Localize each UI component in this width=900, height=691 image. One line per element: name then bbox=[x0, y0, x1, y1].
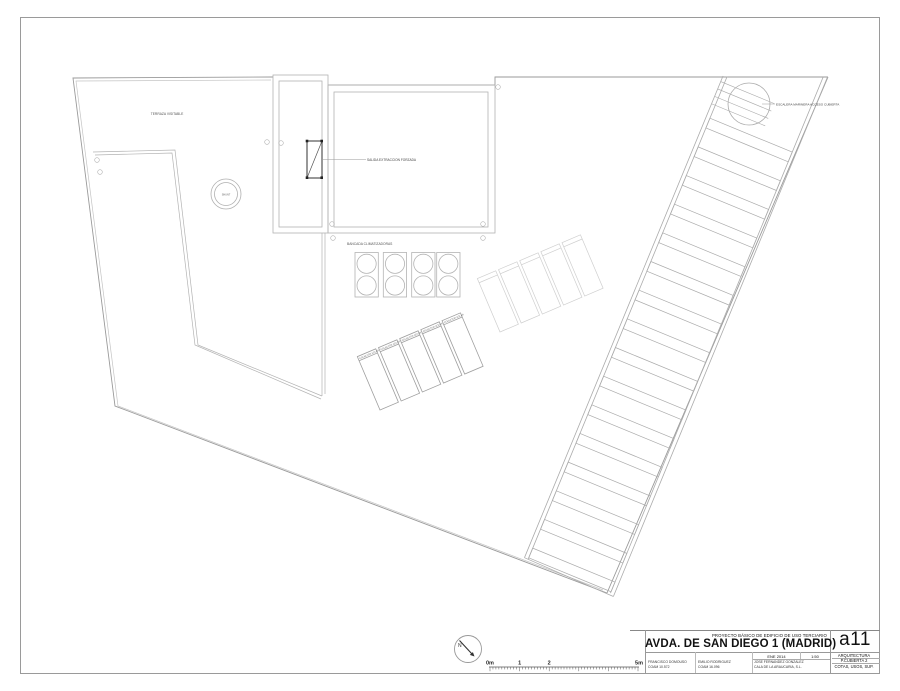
exterior-stair-band bbox=[524, 40, 828, 597]
scale-bar-ticks bbox=[490, 667, 638, 671]
ac-units-label: BANCADA CLIMATIZADORAS bbox=[347, 242, 393, 246]
site-boundary bbox=[73, 77, 828, 593]
solar-collectors: COLECTOR SOLARCOLECTOR SOLARCOLECTOR SOL… bbox=[357, 312, 485, 410]
scale-label-0: 0m bbox=[486, 661, 494, 667]
stair-landings bbox=[529, 118, 792, 592]
stair-treads bbox=[712, 82, 775, 126]
roof-access-stair-label: ESCALERA MARINERA ACCESO CUBIERTA bbox=[776, 103, 840, 107]
terrace-label: TERRAZA VISITABLE bbox=[151, 112, 184, 116]
signatory-credential: COAM 10.572 bbox=[648, 665, 694, 670]
divider bbox=[695, 652, 696, 673]
terrace-inner-edge bbox=[93, 150, 325, 399]
ac-units bbox=[355, 253, 460, 298]
site-boundary-inner bbox=[76, 80, 603, 590]
sheet-contents: COTAS, USOS, SUP. bbox=[830, 664, 878, 669]
forced-extraction-outlet: SALIDA EXTRACCION FORZADA bbox=[306, 140, 417, 179]
title-block: PROYECTO BÁSICO DE EDIFICIO DE USO TERCI… bbox=[630, 630, 880, 673]
discipline: ARQUITECTURA bbox=[830, 653, 878, 658]
vent-label: SHUNT bbox=[222, 193, 231, 196]
roof-vent: SHUNT bbox=[211, 179, 241, 209]
scale-label-1: 1 bbox=[518, 661, 521, 667]
divider bbox=[752, 652, 753, 673]
forced-extraction-label: SALIDA EXTRACCION FORZADA bbox=[367, 158, 417, 162]
signatory-1: FRANCISCO DOMOUSO COAM 10.572 bbox=[648, 660, 694, 670]
scale-bar: 0m 1 2 5m bbox=[486, 661, 643, 672]
solar-collectors-projection bbox=[477, 235, 603, 332]
stair-core bbox=[273, 75, 328, 233]
scale-label-2: 2 bbox=[548, 661, 551, 667]
north-arrow: N bbox=[455, 636, 482, 663]
roof-access-stair: ESCALERA MARINERA ACCESO CUBIERTA bbox=[728, 83, 840, 125]
sheet-code: a11 bbox=[832, 629, 878, 651]
scale-value: 1:50 bbox=[801, 654, 829, 659]
project-title: AVDA. DE SAN DIEGO 1 (MADRID) bbox=[645, 638, 830, 650]
signatory-credential: CALA DE LA ARAUCARIA, S.L. bbox=[754, 665, 828, 670]
signatory-credential: COAM 16.096 bbox=[698, 665, 750, 670]
date-value: ENE 2014 bbox=[754, 654, 799, 659]
north-label: N bbox=[458, 643, 462, 649]
column-markers bbox=[95, 85, 501, 241]
roof-plan-drawing: SALIDA EXTRACCION FORZADA SHUNT TERRAZA … bbox=[0, 0, 900, 691]
signatory-2: EMILIO RODRIGUEZ COAM 16.096 bbox=[698, 660, 750, 670]
signatory-3: JOSE FERNANDEZ GONZALEZ CALA DE LA ARAUC… bbox=[754, 660, 828, 670]
drawing-sheet: SALIDA EXTRACCION FORZADA SHUNT TERRAZA … bbox=[0, 0, 900, 691]
